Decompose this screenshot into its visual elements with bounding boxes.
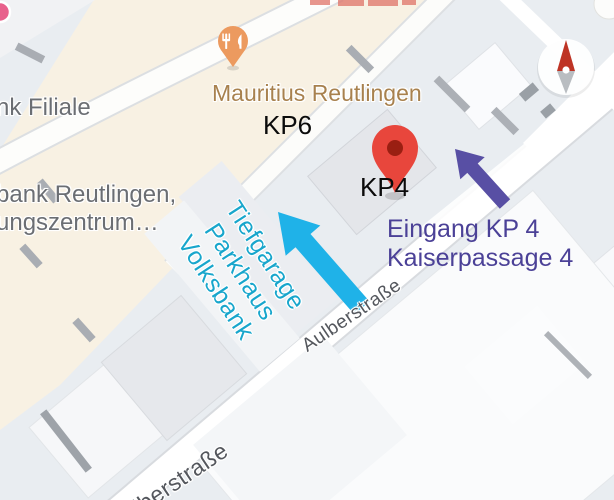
bank-name-line2: ungszentrum… — [0, 209, 176, 237]
map-canvas[interactable]: nk Filiale bank Reutlingen, ungszentrum…… — [0, 0, 614, 500]
kp6-annotation: KP6 — [263, 110, 312, 141]
bank-branch-label[interactable]: nk Filiale — [0, 94, 91, 122]
entrance-line2: Kaiserpassage 4 — [387, 244, 573, 273]
entrance-line1: Eingang KP 4 — [387, 215, 573, 244]
restaurant-poi-label[interactable]: Mauritius Reutlingen — [212, 80, 422, 107]
entrance-annotation: Eingang KP 4 Kaiserpassage 4 — [387, 215, 573, 273]
kp4-annotation: KP4 — [360, 172, 409, 203]
bank-name-line1: bank Reutlingen, — [0, 181, 176, 209]
pink-poi-dot — [0, 2, 10, 22]
bank-name-label[interactable]: bank Reutlingen, ungszentrum… — [0, 181, 176, 237]
compass-icon[interactable] — [537, 39, 595, 98]
